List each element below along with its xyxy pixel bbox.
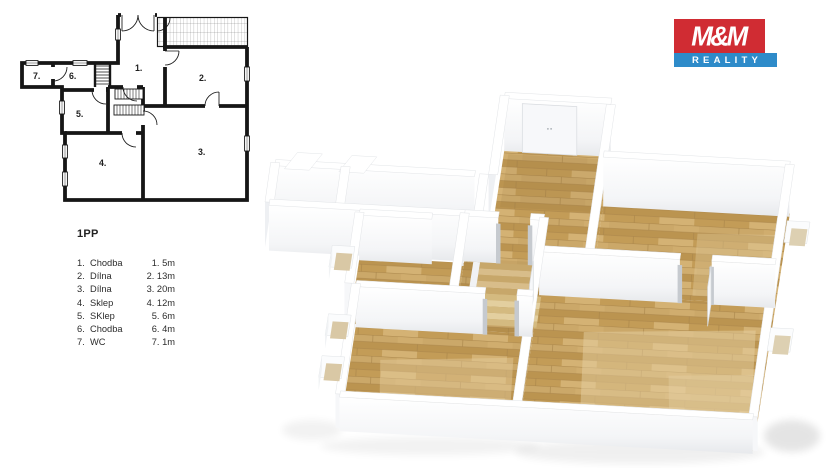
agency-logo: M&M REALITY xyxy=(674,19,777,67)
floor-plan-page: { "page": { "background": "#ffffff" }, "… xyxy=(0,0,832,468)
logo-reality-text: REALITY xyxy=(689,55,762,66)
floor-plan-3d xyxy=(0,0,832,468)
logo-top-band: M&M xyxy=(674,19,765,53)
logo-brand-text: M&M xyxy=(691,20,748,53)
floor-plan-3d-group xyxy=(265,92,820,464)
logo-bottom-band: REALITY xyxy=(674,53,777,67)
